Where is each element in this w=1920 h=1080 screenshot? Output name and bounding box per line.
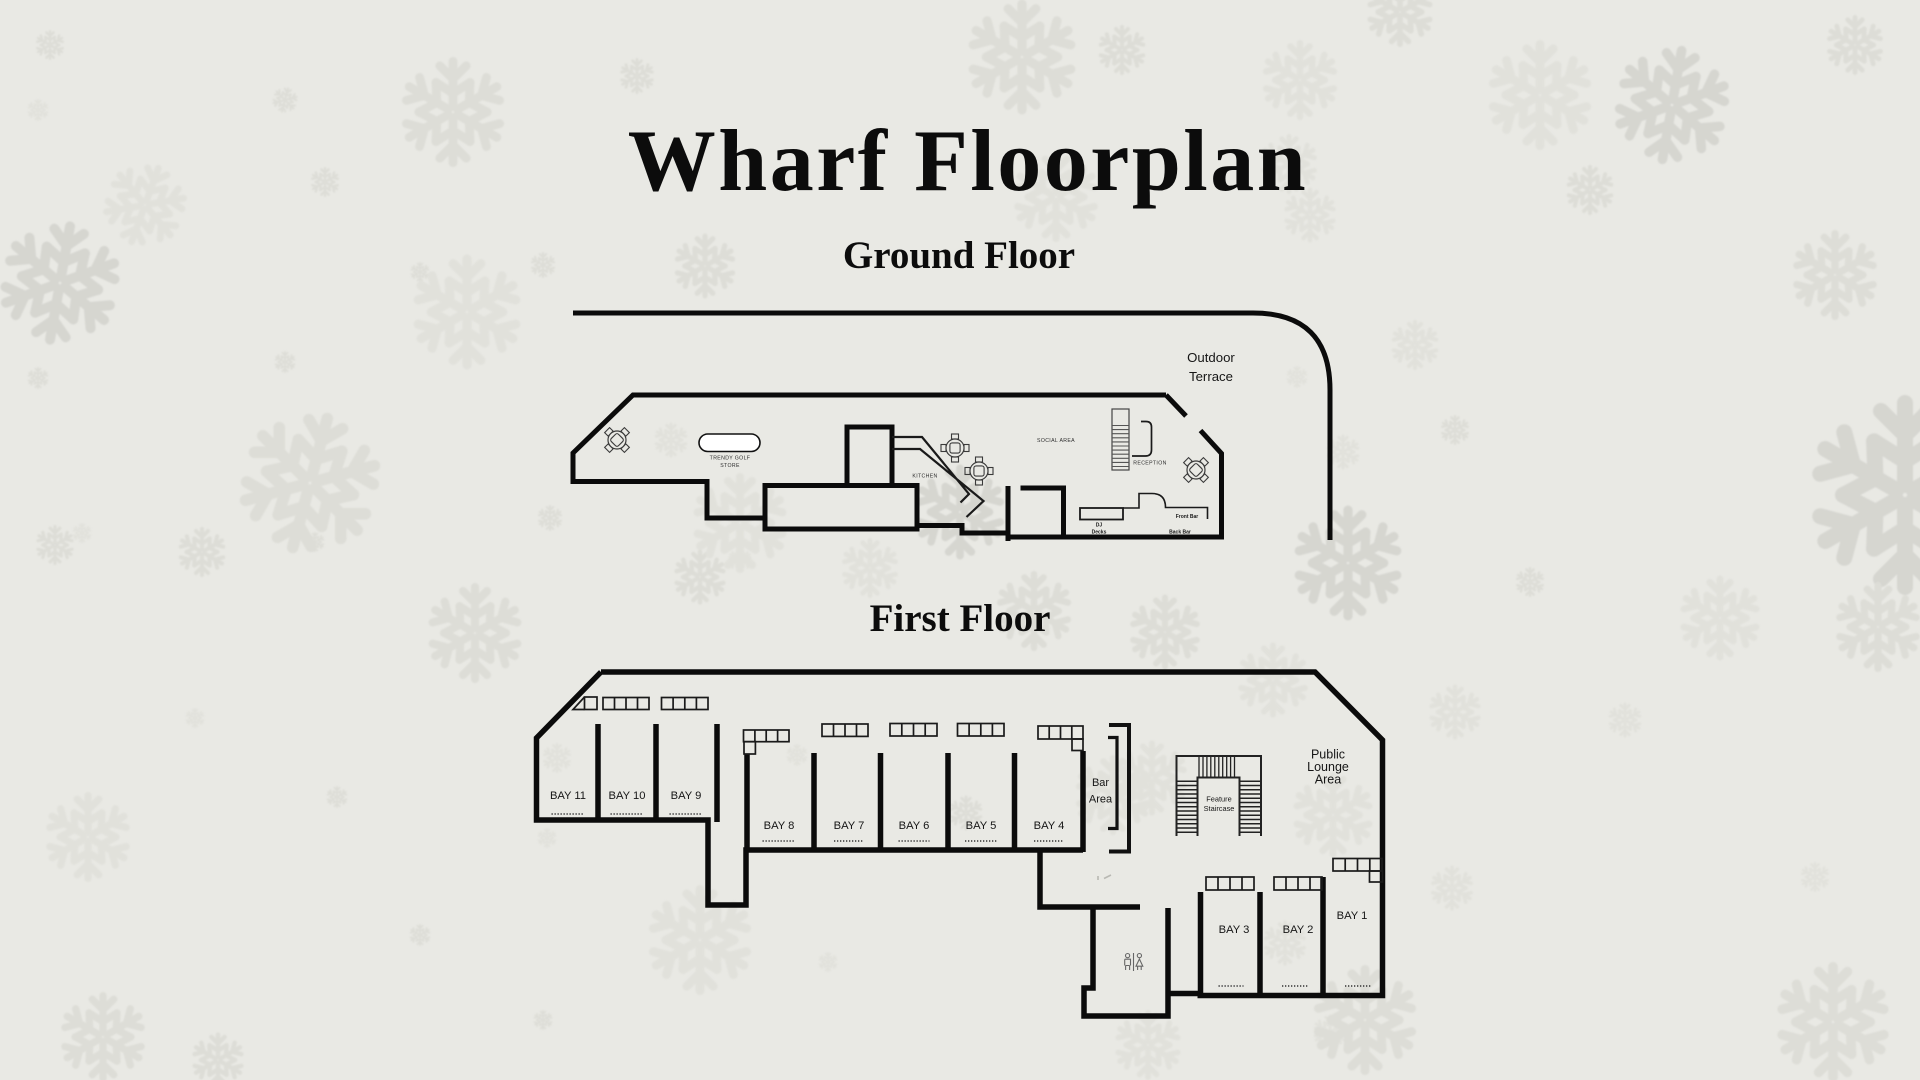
svg-text:BAY 6: BAY 6 (899, 820, 930, 832)
svg-text:BAY 11: BAY 11 (550, 790, 586, 802)
svg-text:Wharf Floorplan: Wharf Floorplan (628, 113, 1308, 210)
svg-text:Bar: Bar (1092, 777, 1109, 789)
svg-text:BAY 8: BAY 8 (764, 820, 795, 832)
svg-text:BAY 3: BAY 3 (1219, 924, 1250, 936)
svg-text:BAY 5: BAY 5 (966, 820, 997, 832)
svg-text:TRENDY GOLF: TRENDY GOLF (710, 456, 751, 462)
svg-text:Terrace: Terrace (1189, 369, 1233, 384)
svg-text:Back Bar: Back Bar (1169, 530, 1191, 536)
svg-text:RECEPTION: RECEPTION (1133, 461, 1166, 467)
svg-text:BAY 1: BAY 1 (1337, 910, 1368, 922)
svg-text:Area: Area (1315, 773, 1341, 787)
svg-text:Ground Floor: Ground Floor (843, 234, 1075, 277)
svg-text:First Floor: First Floor (870, 597, 1051, 640)
svg-text:BAY 9: BAY 9 (671, 790, 702, 802)
svg-text:Front Bar: Front Bar (1176, 514, 1199, 520)
svg-text:BAY 2: BAY 2 (1283, 924, 1314, 936)
svg-text:DJ: DJ (1096, 523, 1103, 529)
svg-text:BAY 4: BAY 4 (1034, 820, 1065, 832)
svg-text:BAY 10: BAY 10 (609, 790, 646, 802)
svg-text:Decks: Decks (1092, 530, 1107, 536)
svg-text:Outdoor: Outdoor (1187, 350, 1235, 365)
svg-text:Area: Area (1089, 794, 1113, 806)
svg-text:Feature: Feature (1206, 795, 1231, 804)
svg-text:KITCHEN: KITCHEN (912, 474, 937, 480)
svg-text:BAY 7: BAY 7 (834, 820, 865, 832)
svg-text:SOCIAL AREA: SOCIAL AREA (1037, 438, 1075, 444)
svg-text:STORE: STORE (720, 463, 740, 469)
svg-text:Staircase: Staircase (1204, 804, 1235, 813)
